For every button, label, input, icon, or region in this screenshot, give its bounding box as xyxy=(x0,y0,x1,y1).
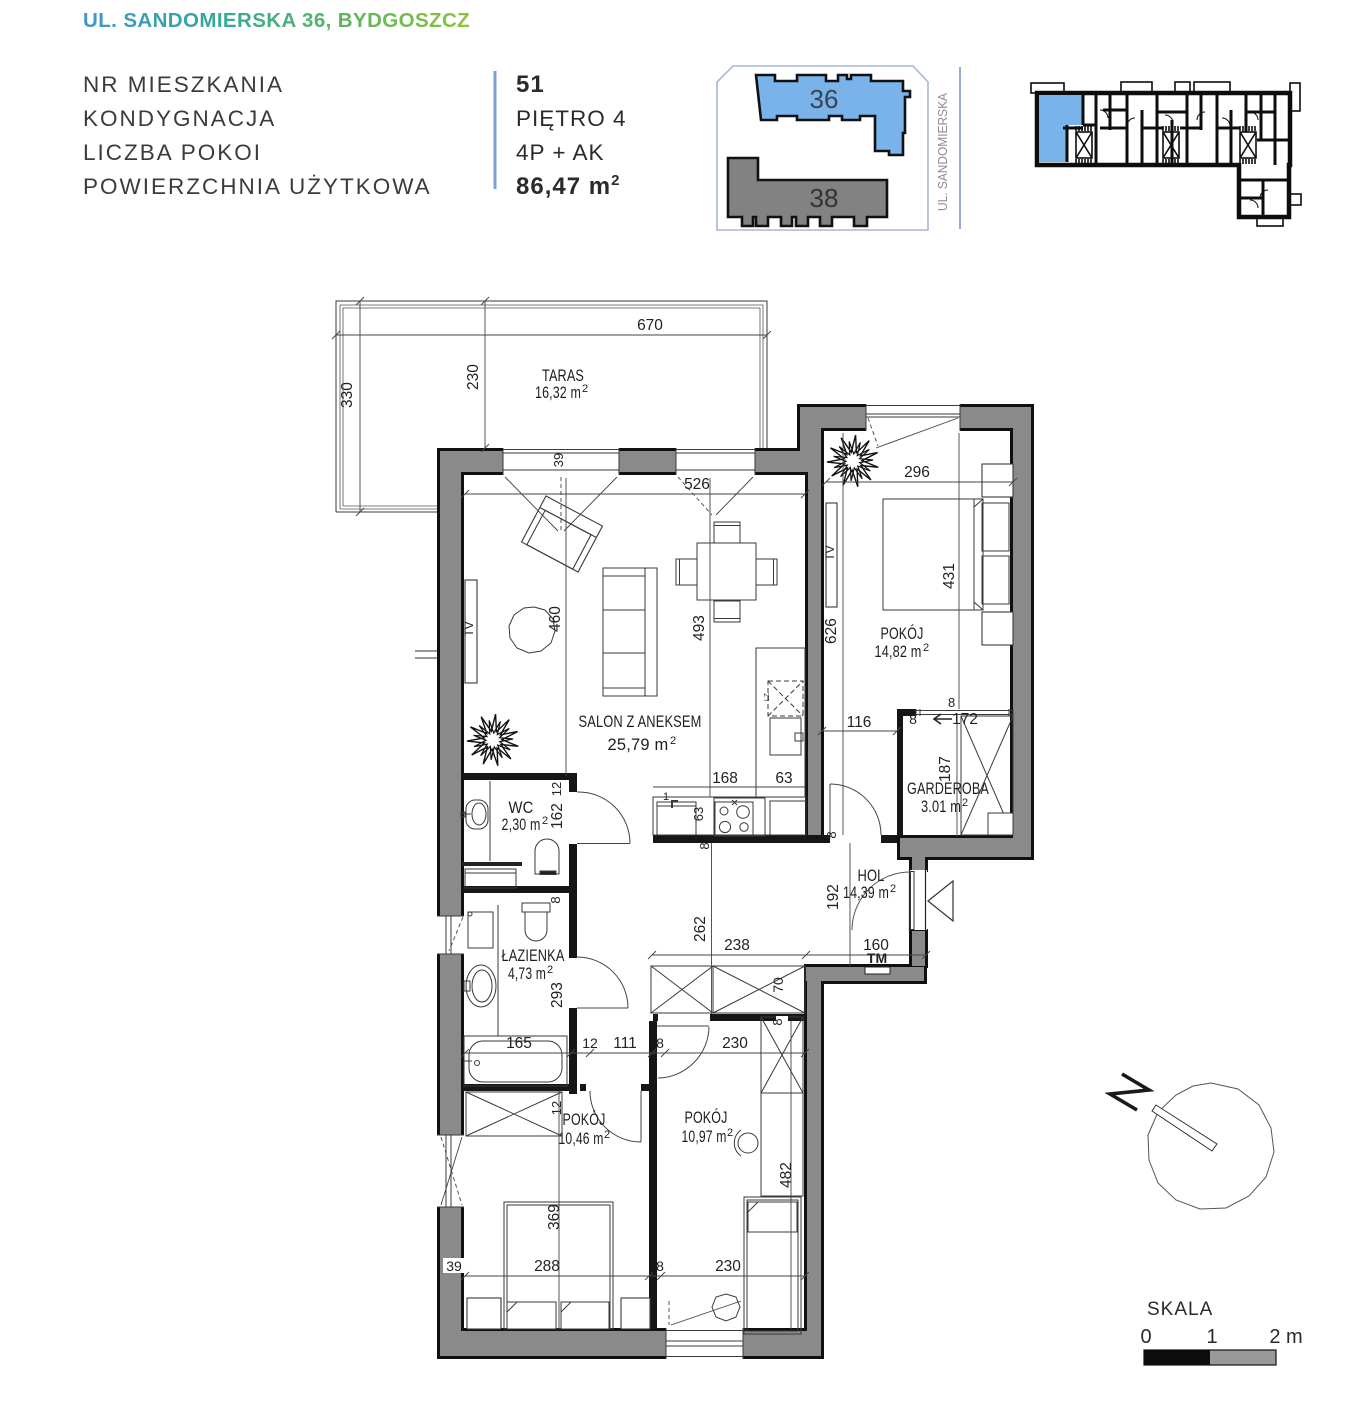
svg-text:36: 36 xyxy=(810,84,839,114)
svg-text:262: 262 xyxy=(692,916,709,942)
svg-text:12: 12 xyxy=(549,782,564,796)
svg-text:SKALA: SKALA xyxy=(1147,1299,1213,1320)
svg-text:2 m: 2 m xyxy=(1269,1326,1302,1348)
svg-text:230: 230 xyxy=(715,1258,741,1275)
svg-text:0: 0 xyxy=(1140,1326,1151,1348)
svg-text:165: 165 xyxy=(506,1035,532,1052)
svg-text:TV: TV xyxy=(462,621,476,636)
svg-text:296: 296 xyxy=(904,464,930,481)
svg-text:1: 1 xyxy=(1206,1326,1217,1348)
svg-text:8: 8 xyxy=(548,896,563,903)
svg-text:230: 230 xyxy=(722,1035,748,1052)
svg-text:39: 39 xyxy=(446,1258,462,1274)
svg-text:38: 38 xyxy=(810,183,839,213)
svg-text:526: 526 xyxy=(684,476,710,493)
svg-text:431: 431 xyxy=(941,563,958,589)
svg-text:SALON Z ANEKSEM: SALON Z ANEKSEM xyxy=(579,712,702,731)
svg-text:230: 230 xyxy=(465,364,482,390)
svg-text:8: 8 xyxy=(770,1018,785,1025)
svg-text:493: 493 xyxy=(691,615,708,641)
svg-text:10,97 m: 10,97 m xyxy=(682,1127,727,1146)
svg-text:12: 12 xyxy=(582,1035,598,1051)
svg-text:3.01 m: 3.01 m xyxy=(921,797,961,816)
svg-text:POKÓJ: POKÓJ xyxy=(881,624,924,643)
svg-text:460: 460 xyxy=(547,606,564,632)
svg-text:4P + AK: 4P + AK xyxy=(516,140,605,165)
svg-text:8: 8 xyxy=(948,695,955,710)
svg-text:POKÓJ: POKÓJ xyxy=(563,1110,606,1129)
svg-text:2: 2 xyxy=(547,964,553,976)
svg-text:70: 70 xyxy=(770,977,786,993)
svg-text:10,46 m: 10,46 m xyxy=(559,1129,604,1148)
svg-text:8: 8 xyxy=(824,831,839,838)
svg-text:111: 111 xyxy=(613,1035,637,1052)
svg-text:626: 626 xyxy=(823,618,840,644)
svg-text:293: 293 xyxy=(549,982,566,1008)
svg-text:UL. SANDOMIERSKA: UL. SANDOMIERSKA xyxy=(935,93,950,211)
svg-text:2: 2 xyxy=(890,883,896,895)
svg-text:670: 670 xyxy=(637,317,663,334)
svg-text:172: 172 xyxy=(952,711,978,728)
svg-text:LICZBA POKOI: LICZBA POKOI xyxy=(83,140,262,165)
svg-text:2: 2 xyxy=(727,1127,733,1139)
svg-text:8: 8 xyxy=(909,711,917,727)
svg-text:116: 116 xyxy=(847,714,872,731)
svg-text:238: 238 xyxy=(724,937,750,954)
svg-text:25,79 m: 25,79 m xyxy=(608,735,669,754)
svg-text:2: 2 xyxy=(604,1129,610,1141)
svg-text:2: 2 xyxy=(670,735,676,747)
svg-text:86,47 m2: 86,47 m2 xyxy=(516,172,620,200)
svg-text:TM: TM xyxy=(867,950,887,966)
svg-text:63: 63 xyxy=(775,770,792,787)
svg-text:288: 288 xyxy=(534,1258,560,1275)
svg-text:2: 2 xyxy=(923,642,929,654)
svg-text:8: 8 xyxy=(656,1258,664,1274)
svg-text:2: 2 xyxy=(542,815,548,827)
svg-text:14,82 m: 14,82 m xyxy=(875,642,922,661)
svg-text:2: 2 xyxy=(582,383,588,395)
svg-text:4,73 m: 4,73 m xyxy=(508,964,546,983)
svg-text:39: 39 xyxy=(551,453,566,467)
svg-text:63: 63 xyxy=(691,807,706,821)
svg-text:8: 8 xyxy=(656,1035,664,1051)
svg-text:POWIERZCHNIA UŻYTKOWA: POWIERZCHNIA UŻYTKOWA xyxy=(83,174,432,199)
svg-text:162: 162 xyxy=(549,803,566,829)
svg-text:16,32 m: 16,32 m xyxy=(535,383,581,402)
svg-text:UL. SANDOMIERSKA 36, BYDGOSZCZ: UL. SANDOMIERSKA 36, BYDGOSZCZ xyxy=(83,9,470,32)
svg-text:LZ: LZ xyxy=(764,692,771,701)
svg-text:8: 8 xyxy=(697,842,712,849)
svg-text:TV: TV xyxy=(823,545,837,560)
svg-text:192: 192 xyxy=(825,884,842,910)
svg-text:168: 168 xyxy=(712,770,738,787)
svg-text:369: 369 xyxy=(546,1204,563,1230)
svg-text:2: 2 xyxy=(962,797,968,809)
svg-text:GARDEROBA: GARDEROBA xyxy=(907,779,989,798)
svg-text:51: 51 xyxy=(516,71,545,98)
svg-text:ŁAZIENKA: ŁAZIENKA xyxy=(502,946,565,965)
svg-text:1: 1 xyxy=(663,791,669,803)
svg-text:330: 330 xyxy=(339,382,356,408)
svg-text:KONDYGNACJA: KONDYGNACJA xyxy=(83,106,276,131)
svg-text:482: 482 xyxy=(778,1162,795,1188)
svg-text:2,30 m: 2,30 m xyxy=(502,815,541,834)
svg-text:PIĘTRO 4: PIĘTRO 4 xyxy=(516,106,627,131)
svg-text:POKÓJ: POKÓJ xyxy=(685,1108,728,1127)
svg-text:NR MIESZKANIA: NR MIESZKANIA xyxy=(83,72,284,97)
